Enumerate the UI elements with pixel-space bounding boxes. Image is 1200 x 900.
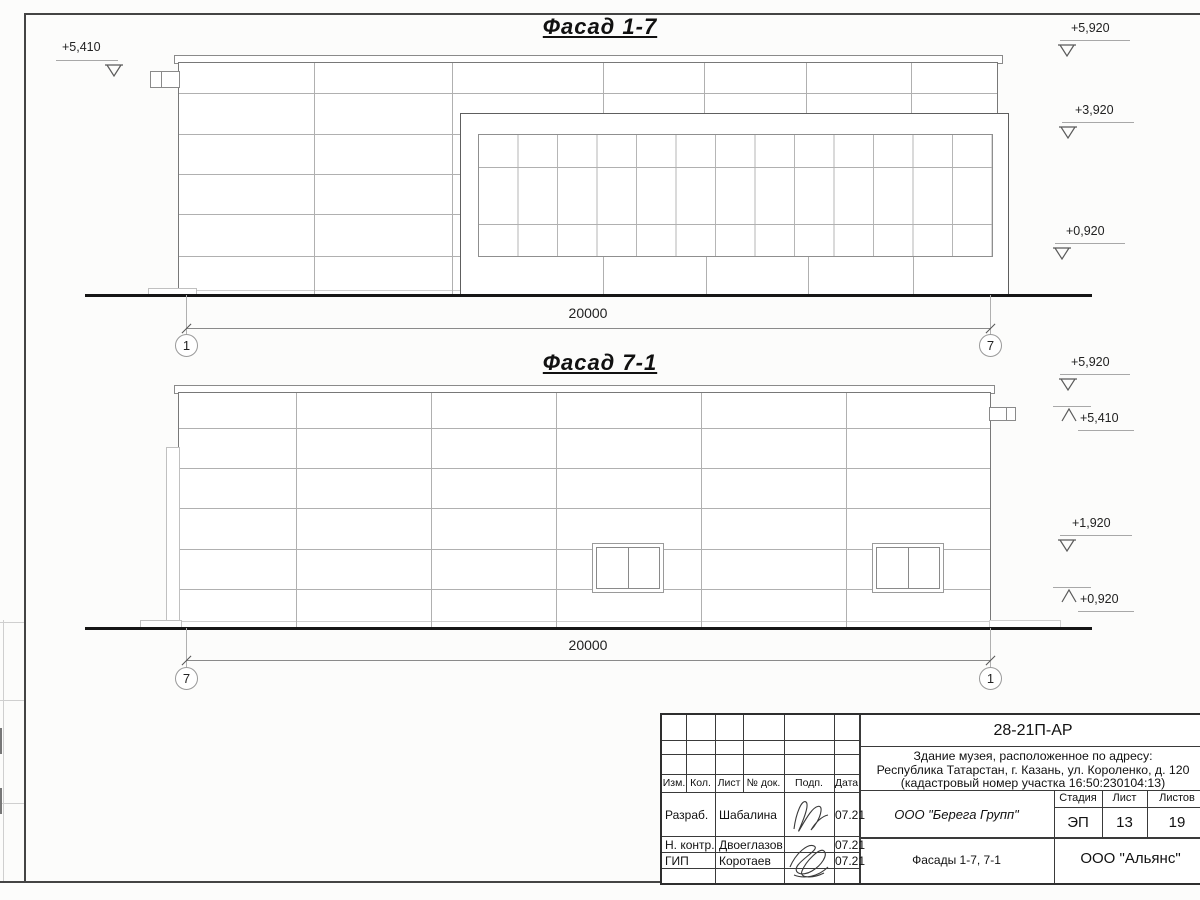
elevation-arrow-down-icon (1050, 244, 1074, 261)
mullion (913, 257, 914, 296)
tb-role-ncontr: Н. контр. (665, 838, 715, 852)
tb-col-izm: Изм. (662, 777, 686, 789)
tb-org: ООО "Альянс" (1054, 850, 1200, 867)
tb-project-line1: Здание музея, расположенное по адресу: (859, 749, 1200, 763)
axis-bubble-right: 7 (979, 334, 1002, 357)
title-block: Изм. Кол. Лист № док. Подп. Дата Разраб.… (660, 713, 1200, 885)
tb-drawing-title: Фасады 1-7, 7-1 (859, 853, 1054, 867)
mullion (706, 257, 707, 296)
tb-sheets-value: 19 (1147, 814, 1200, 831)
tb-line (1054, 807, 1200, 808)
tb-line (662, 740, 859, 741)
curtain-wall-glazing (478, 134, 993, 257)
tb-name-ncontr: Двоеглазов (719, 838, 783, 852)
drawing-sheet: Фасад 1-7 20000 1 7 (0, 0, 1200, 900)
elevation-arrow-down-icon (102, 61, 126, 78)
axis-bubble-left: 7 (175, 667, 198, 690)
margin-stamp-mark (0, 788, 2, 814)
mullion (314, 63, 315, 296)
panel-line (179, 549, 990, 550)
elevation-arrow-up-icon (1057, 587, 1081, 604)
elevation-mark-label: +0,920 (1066, 224, 1105, 238)
tb-line (662, 754, 859, 755)
mullion (556, 393, 557, 629)
side-step (166, 447, 180, 629)
margin-strip-divider (0, 803, 24, 804)
tb-doc-number: 28-21П-АР (859, 722, 1200, 740)
elevation-mark-line (1078, 430, 1134, 431)
elevation-mark-label: +0,920 (1080, 592, 1119, 606)
window-divider (908, 547, 909, 589)
tb-col-kol: Кол. (686, 777, 715, 789)
tb-stage-label: Стадия (1054, 792, 1102, 804)
axis-bubble-right: 1 (979, 667, 1002, 690)
tb-sheet-label: Лист (1102, 792, 1147, 804)
vent-divider (161, 72, 162, 87)
elevation-arrow-down-icon (1056, 375, 1080, 392)
tb-line (662, 792, 859, 793)
panel-line (179, 508, 990, 509)
tb-role-dev: Разраб. (665, 808, 708, 822)
tb-line (859, 837, 1200, 839)
ground-line (85, 627, 1092, 630)
mullion (846, 393, 847, 629)
elevation-mark-label: +3,920 (1075, 103, 1114, 117)
tb-line (859, 746, 1200, 747)
elevation-mark-label: +5,920 (1071, 21, 1110, 35)
tb-col-doc: № док. (743, 777, 784, 789)
transom-line (479, 167, 992, 168)
signature-icon (786, 795, 832, 835)
panel-line (179, 589, 990, 590)
ground-line (85, 294, 1092, 297)
window (872, 543, 944, 593)
panel-line (179, 93, 997, 94)
margin-strip-divider (0, 622, 24, 623)
frame-left-line (24, 13, 26, 882)
mullion (431, 393, 432, 629)
tb-line (662, 774, 859, 775)
mullion (808, 257, 809, 296)
elevation-arrow-down-icon (1055, 536, 1079, 553)
mullion (701, 393, 702, 629)
margin-strip-line (3, 620, 4, 881)
tb-date-ncontr: 07.21 (835, 838, 865, 852)
dimension-label: 20000 (538, 305, 638, 321)
elevation-mark-label: +5,920 (1071, 355, 1110, 369)
tb-role-gip: ГИП (665, 854, 689, 868)
tb-project-line2: Республика Татарстан, г. Казань, ул. Кор… (859, 763, 1200, 777)
mullion (603, 257, 604, 296)
dimension-line (186, 328, 990, 329)
window-divider (628, 547, 629, 589)
facade-7-1-wall (178, 392, 991, 630)
tb-col-data: Дата (834, 777, 859, 789)
facade-1-7-glazed-volume (460, 113, 1009, 297)
window (592, 543, 664, 593)
dimension-label: 20000 (538, 637, 638, 653)
roof-vent-box (989, 407, 1016, 421)
vent-divider (1006, 408, 1007, 420)
plinth-line (179, 621, 990, 622)
tb-name-dev: Шабалина (719, 808, 777, 822)
tb-stage-value: ЭП (1054, 814, 1102, 831)
signature-icon (784, 837, 834, 881)
mullion (452, 63, 453, 296)
elevation-arrow-up-icon (1057, 406, 1081, 423)
elevation-mark-label: +5,410 (62, 40, 101, 54)
elevation-arrow-down-icon (1056, 123, 1080, 140)
axis-bubble-left: 1 (175, 334, 198, 357)
panel-line (179, 428, 990, 429)
tb-company: ООО "Берега Групп" (859, 807, 1054, 822)
elevation-mark-line (1078, 611, 1134, 612)
transom-line (479, 224, 992, 225)
mullion (296, 393, 297, 629)
facade-1-7-title: Фасад 1-7 (430, 14, 770, 40)
elevation-mark-label: +5,410 (1080, 411, 1119, 425)
tb-sheet-value: 13 (1102, 814, 1147, 831)
roof-vent-box (150, 71, 180, 88)
tb-line (859, 790, 1200, 791)
margin-stamp-mark (0, 728, 2, 754)
tb-name-gip: Коротаев (719, 854, 771, 868)
tb-col-podp: Подп. (784, 777, 834, 789)
tb-project-line3: (кадастровый номер участка 16:50:230104:… (859, 776, 1200, 790)
elevation-arrow-down-icon (1055, 41, 1079, 58)
tb-sheets-label: Листов (1147, 792, 1200, 804)
dimension-line (186, 660, 990, 661)
margin-strip-divider (0, 700, 24, 701)
tb-col-list: Лист (715, 777, 743, 789)
panel-line (179, 468, 990, 469)
elevation-mark-label: +1,920 (1072, 516, 1111, 530)
facade-7-1-title: Фасад 7-1 (430, 350, 770, 376)
